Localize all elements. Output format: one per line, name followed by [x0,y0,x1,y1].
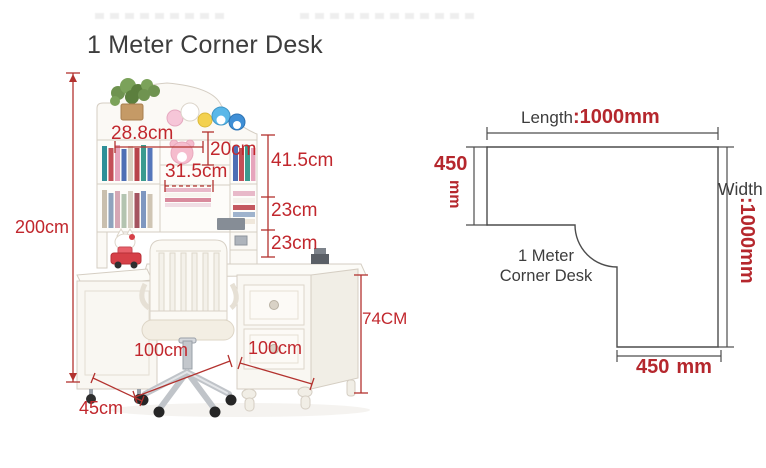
page-title: 1 Meter Corner Desk [87,31,323,60]
plan-width-value: :1000mm [758,197,766,220]
shelf-width-label: 31.5cm [165,162,227,183]
total-height-label: 200cm [15,218,69,238]
depth-label: 45cm [79,399,123,419]
photo-frame [235,236,247,245]
plan-bottom-depth-value: 450 [636,356,669,378]
desktop-books [311,254,329,264]
cropped-text-remnant [300,13,475,19]
desk-organizer [217,218,245,230]
corner-desk-photo [55,60,415,430]
product-dimension-sheet: 1 Meter Corner Desk [0,0,766,468]
floor-shadow [110,403,370,417]
left-length-label: 100cm [134,341,188,361]
plan-desk-name-line1: 1 Meter [486,247,606,267]
hutch-width-label: 28.8cm [111,124,173,145]
low-section-label: 23cm [271,234,317,255]
plan-length-text: Length [521,108,573,127]
cropped-text-remnant [95,13,225,19]
plan-left-depth-unit: mm [463,180,491,198]
floor-plan-diagram [430,95,766,395]
plan-length-value: :1000mm [573,106,660,128]
plan-dim-width [718,147,734,347]
shelf-height-label: 20cm [210,140,256,161]
top-section-label: 41.5cm [271,151,333,172]
plan-bottom-depth-unit: mm [676,356,712,378]
hello-kitty-toy [111,229,141,269]
plan-left-depth-value: 450 [434,153,467,176]
desk-height-label: 74CM [362,310,407,329]
mid-section-label: 23cm [271,201,317,222]
plan-bottom-depth-label: 450mm [636,356,712,379]
plan-desk-name-line2: Corner Desk [486,267,606,287]
right-length-label: 100cm [248,339,302,359]
plan-length-label: Length:1000mm [521,106,660,129]
plan-desk-name: 1 Meter Corner Desk [486,247,606,286]
